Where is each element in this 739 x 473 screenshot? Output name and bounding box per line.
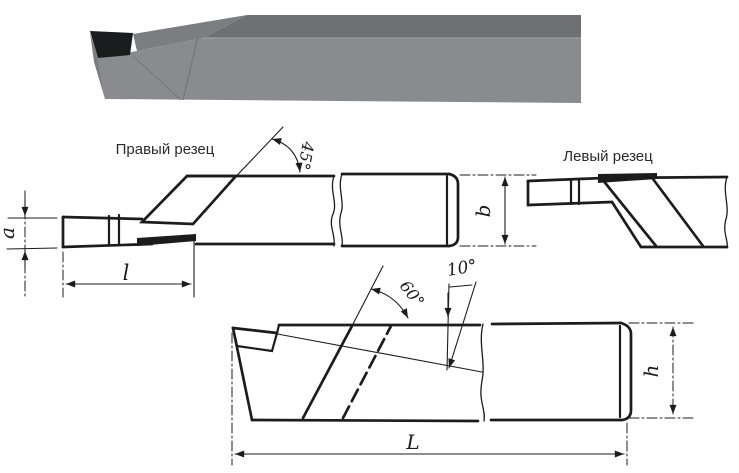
dim-l-label: l xyxy=(123,261,130,285)
edge-wedge xyxy=(137,234,196,246)
edge-wedge xyxy=(598,173,657,183)
angle-45-label: 45° xyxy=(294,139,318,171)
side-view xyxy=(233,266,631,421)
break-line xyxy=(725,177,728,248)
dimension-L xyxy=(232,333,627,465)
break-line xyxy=(481,324,484,421)
right-cutter-label: Правый резец xyxy=(116,141,215,158)
body-top-edge-right xyxy=(492,323,621,324)
braze-seat-line-hidden xyxy=(343,326,391,418)
dim-b-label: b xyxy=(471,205,495,218)
inclined-face-parallelogram xyxy=(142,176,236,224)
angle-10-bracket xyxy=(450,285,472,287)
left-cutter-label: Левый резец xyxy=(563,148,653,165)
orthographic-views xyxy=(7,127,727,465)
extension-line xyxy=(7,248,57,249)
inclined-face-edge xyxy=(653,179,703,246)
dim-L-label: L xyxy=(405,430,419,454)
tool-drawing-svg: Правый резец Левый резец 45° 60° 10° a l… xyxy=(0,0,739,473)
left-cutter-plan-view xyxy=(528,173,727,248)
angle-10-label: 10° xyxy=(445,256,478,281)
break-line xyxy=(340,174,343,246)
insert-plate-outline xyxy=(233,328,277,351)
dimension-a xyxy=(7,191,57,297)
tool-top-face xyxy=(203,15,581,38)
dim-a-label: a xyxy=(0,227,19,239)
inclined-face-edge xyxy=(602,179,656,246)
cutting-edge-extension-line xyxy=(225,127,283,188)
tool-photo-3d xyxy=(90,15,581,103)
break-line xyxy=(331,176,334,246)
body-bottom-edge xyxy=(252,420,478,421)
edge-construction-line xyxy=(272,333,482,372)
seat-extension-line xyxy=(352,266,383,326)
tool-front-face xyxy=(98,38,581,103)
body-right-edge xyxy=(621,323,631,420)
angle-60-label: 60° xyxy=(396,277,428,311)
dim-h-label: h xyxy=(639,365,663,378)
blade-top-edge xyxy=(63,217,142,219)
cutting-tool-drawing-page: Правый резец Левый резец 45° 60° 10° a l… xyxy=(0,0,739,473)
end-right-edge xyxy=(449,174,458,246)
